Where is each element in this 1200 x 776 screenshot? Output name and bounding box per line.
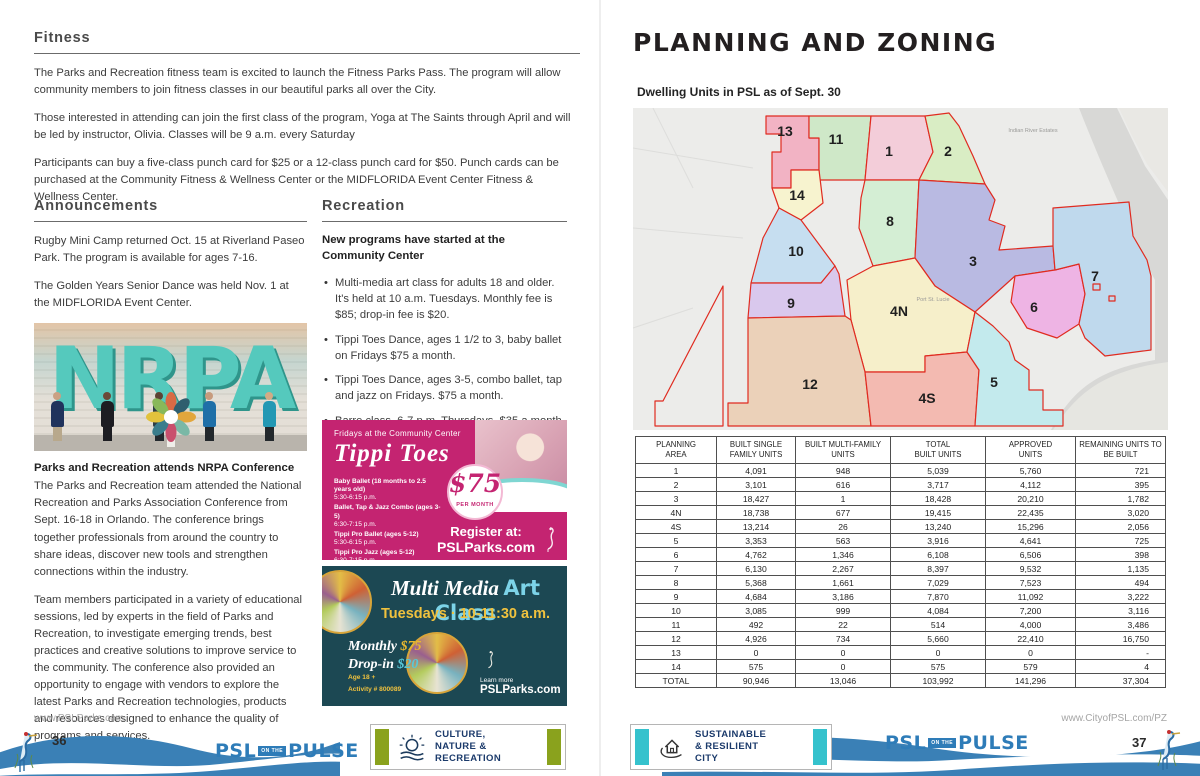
table-cell: 3,085 (717, 604, 796, 618)
table-cell: 13,240 (891, 520, 986, 534)
page-title: PLANNING AND ZONING (633, 28, 997, 57)
art-photo-circle (322, 570, 372, 634)
table-cell: 7,029 (891, 576, 986, 590)
table-cell: 492 (717, 618, 796, 632)
table-cell: 18,428 (891, 492, 986, 506)
table-cell: 22,410 (986, 632, 1076, 646)
dropin-label: Drop-in (348, 657, 394, 672)
table-cell: 0 (986, 646, 1076, 660)
table-cell: 4 (1076, 660, 1166, 674)
table-cell: 579 (986, 660, 1076, 674)
table-row: 85,3681,6617,0297,523494 (636, 576, 1166, 590)
fitness-section: Fitness The Parks and Recreation fitness… (34, 30, 580, 217)
table-cell: 677 (796, 506, 891, 520)
table-cell: 103,992 (891, 674, 986, 688)
col-planning-area: PLANNING AREA (636, 437, 717, 464)
map-area-label: 4S (918, 390, 935, 406)
multi-media-art-class-ad: Multi Media Art Class Tuesdays · 10-11:3… (322, 566, 567, 706)
table-cell: 1,135 (1076, 562, 1166, 576)
table-cell: 3,353 (717, 534, 796, 548)
badge-label: CULTURE, NATURE & RECREATION (435, 729, 541, 765)
mm-meta: Age 18 + Activity # 800089 (348, 672, 401, 696)
table-cell: 3,101 (717, 478, 796, 492)
table-cell: 22 (796, 618, 891, 632)
table-cell: 90,946 (717, 674, 796, 688)
map-area-label: 9 (787, 295, 795, 311)
table-cell: 9,532 (986, 562, 1076, 576)
map-area-label: 6 (1030, 299, 1038, 315)
table-cell: 4,926 (717, 632, 796, 646)
table-cell: 19,415 (891, 506, 986, 520)
city-logo-icon (539, 526, 561, 552)
table-row: 124,9267345,66022,41016,750 (636, 632, 1166, 646)
map-area-label: 10 (788, 243, 804, 259)
table-cell: 11,092 (986, 590, 1076, 604)
sustainable-resilient-city-badge: SUSTAINABLE & RESILIENT CITY (630, 724, 832, 770)
psl-on-the-pulse-logo: PSL ON THE PULSE (885, 732, 1029, 754)
table-cell: 0 (796, 660, 891, 674)
price-unit: PER MONTH (449, 502, 501, 508)
table-row: 14,0919485,0395,760721 (636, 464, 1166, 478)
recreation-intro: New programs have started at the Communi… (322, 233, 567, 265)
table-cell: 575 (717, 660, 796, 674)
table-cell: 12 (636, 632, 717, 646)
table-row: 130000- (636, 646, 1166, 660)
class-name: Tippi Pro Ballet (ages 5-12) (334, 531, 444, 539)
table-cell: 10 (636, 604, 717, 618)
table-cell: 2,267 (796, 562, 891, 576)
table-cell: 575 (891, 660, 986, 674)
table-cell: 3,717 (891, 478, 986, 492)
table-cell: TOTAL (636, 674, 717, 688)
table-cell: 20,210 (986, 492, 1076, 506)
table-header-row: PLANNING AREA BUILT SINGLE FAMILY UNITS … (636, 437, 1166, 464)
house-in-hand-icon (655, 730, 689, 764)
learn-more-label: Learn more (480, 677, 560, 684)
table-cell: 4,641 (986, 534, 1076, 548)
map-subtitle: Dwelling Units in PSL as of Sept. 30 (637, 85, 841, 99)
table-cell: 26 (796, 520, 891, 534)
table-cell: 4,000 (986, 618, 1076, 632)
activity-number: Activity # 800089 (348, 684, 401, 696)
person-silhouette (262, 392, 276, 441)
table-cell: 1,346 (796, 548, 891, 562)
col-approved: APPROVED UNITS (986, 437, 1076, 464)
tippi-schedule: Baby Ballet (18 months to 2.5 years old)… (334, 478, 444, 560)
table-cell: 8 (636, 576, 717, 590)
table-cell: 11 (636, 618, 717, 632)
announcements-heading: Announcements (34, 198, 307, 222)
table-cell: 3,116 (1076, 604, 1166, 618)
table-row: TOTAL90,94613,046103,992141,29637,304 (636, 674, 1166, 688)
tippi-ad-header: Fridays at the Community Center (334, 429, 461, 438)
heron-icon (7, 728, 41, 774)
table-cell: 2,056 (1076, 520, 1166, 534)
class-time: 6:30-7:15 p.m. (334, 521, 444, 528)
mm-fees: Monthly $75 Drop-in $20 (348, 638, 422, 673)
city-logo-icon (480, 650, 500, 670)
table-cell: 4,112 (986, 478, 1076, 492)
badge-bar (547, 729, 561, 765)
class-name: Baby Ballet (18 months to 2.5 years old) (334, 478, 444, 494)
recreation-section: Recreation New programs have started at … (322, 198, 567, 437)
fitness-paragraph: Those interested in attending can join t… (34, 110, 580, 144)
map-area-label: 8 (886, 213, 894, 229)
table-cell: - (1076, 646, 1166, 660)
table-cell: 5 (636, 534, 717, 548)
culture-nature-recreation-badge: CULTURE, NATURE & RECREATION (370, 724, 566, 770)
person-silhouette (50, 392, 64, 441)
table-cell: 141,296 (986, 674, 1076, 688)
table-row: 53,3535633,9164,641725 (636, 534, 1166, 548)
table-cell: 13,214 (717, 520, 796, 534)
magazine-spread: Fitness The Parks and Recreation fitness… (0, 0, 1200, 776)
table-cell: 6,108 (891, 548, 986, 562)
table-cell: 3 (636, 492, 717, 506)
table-cell: 7,200 (986, 604, 1076, 618)
table-cell: 5,660 (891, 632, 986, 646)
table-cell: 398 (1076, 548, 1166, 562)
table-cell: 9 (636, 590, 717, 604)
table-cell: 16,750 (1076, 632, 1166, 646)
class-time: 5:30-6:15 p.m. (334, 539, 444, 546)
table-row: 76,1302,2678,3979,5321,135 (636, 562, 1166, 576)
person-silhouette (202, 392, 216, 441)
map-area-label: 13 (777, 123, 793, 139)
map-place-label: Indian River Estates (1008, 128, 1057, 134)
price-amount: $75 (449, 466, 501, 502)
table-cell: 0 (891, 646, 986, 660)
table-cell: 514 (891, 618, 986, 632)
dropin-price: $20 (397, 657, 418, 672)
map-area-label: 11 (829, 131, 844, 147)
table-cell: 3,916 (891, 534, 986, 548)
table-cell: 3,222 (1076, 590, 1166, 604)
table-row: 23,1016163,7174,112395 (636, 478, 1166, 492)
nrpa-caption-title: Parks and Recreation attends NRPA Confer… (34, 461, 307, 476)
table-cell: 13,046 (796, 674, 891, 688)
table-cell: 8,397 (891, 562, 986, 576)
nrpa-conference-photo: NRPA (34, 323, 307, 451)
price-badge: $75 PER MONTH (447, 464, 503, 520)
table-cell: 948 (796, 464, 891, 478)
table-cell: 4N (636, 506, 717, 520)
tippi-toes-ad: Fridays at the Community Center Tippi To… (322, 420, 567, 560)
table-cell: 4S (636, 520, 717, 534)
map-area-label: 4N (890, 303, 908, 319)
mm-title-script: Multi Media (391, 576, 499, 600)
announcements-section: Announcements Rugby Mini Camp returned O… (34, 198, 307, 756)
page-number: 36 (52, 733, 66, 748)
dwelling-units-table: PLANNING AREA BUILT SINGLE FAMILY UNITS … (635, 436, 1165, 688)
map-area-label: 5 (990, 374, 998, 390)
fitness-paragraph: The Parks and Recreation fitness team is… (34, 65, 580, 99)
table-cell: 37,304 (1076, 674, 1166, 688)
table-cell: 721 (1076, 464, 1166, 478)
table-row: 94,6843,1867,87011,0923,222 (636, 590, 1166, 604)
announcements-paragraph: Rugby Mini Camp returned Oct. 15 at Rive… (34, 233, 307, 267)
badge-label: SUSTAINABLE & RESILIENT CITY (695, 729, 807, 765)
table-cell: 1,782 (1076, 492, 1166, 506)
monthly-price: $75 (401, 639, 422, 654)
table-row: 64,7621,3466,1086,506398 (636, 548, 1166, 562)
nrpa-paragraph: The Parks and Recreation team attended t… (34, 478, 307, 580)
table-cell: 616 (796, 478, 891, 492)
table-row: 4N18,73867719,41522,4353,020 (636, 506, 1166, 520)
recreation-bullet: Tippi Toes Dance, ages 3-5, combo ballet… (322, 372, 567, 404)
table-cell: 494 (1076, 576, 1166, 590)
table-cell: 4,091 (717, 464, 796, 478)
tippi-toes-logo: Tippi Toes (334, 440, 450, 468)
table-cell: 14 (636, 660, 717, 674)
table-cell: 563 (796, 534, 891, 548)
table-cell: 2 (636, 478, 717, 492)
recreation-bullet-list: Multi-media art class for adults 18 and … (322, 275, 567, 429)
nrpa-flower-logo (145, 391, 197, 447)
table-cell: 1 (796, 492, 891, 506)
table-cell: 4,762 (717, 548, 796, 562)
table-cell: 0 (796, 646, 891, 660)
recreation-bullet: Multi-media art class for adults 18 and … (322, 275, 567, 324)
monthly-label: Monthly (348, 639, 397, 654)
table-cell: 6,130 (717, 562, 796, 576)
table-row: 11492225144,0003,486 (636, 618, 1166, 632)
heron-icon (1152, 726, 1186, 772)
table-cell: 3,020 (1076, 506, 1166, 520)
class-time: 6:30-7:15 p.m. (334, 557, 444, 560)
planning-map-svg: Port St. LucieIndian River Estates 13111… (633, 108, 1168, 430)
table-row: 318,427118,42820,2101,782 (636, 492, 1166, 506)
map-area-label: 2 (944, 143, 952, 159)
table-cell: 5,760 (986, 464, 1076, 478)
table-cell: 18,738 (717, 506, 796, 520)
table-cell: 734 (796, 632, 891, 646)
table-cell: 5,039 (891, 464, 986, 478)
table-cell: 3,186 (796, 590, 891, 604)
badge-bar (635, 729, 649, 765)
page-number: 37 (1132, 735, 1146, 750)
table-cell: 7,523 (986, 576, 1076, 590)
table-cell: 395 (1076, 478, 1166, 492)
class-name: Ballet, Tap & Jazz Combo (ages 3-5) (334, 504, 444, 520)
map-area-label: 1 (885, 143, 893, 159)
table-cell: 22,435 (986, 506, 1076, 520)
map-area-label: 3 (969, 253, 977, 269)
fitness-heading: Fitness (34, 30, 580, 54)
table-cell: 4,084 (891, 604, 986, 618)
recreation-bullet: Tippi Toes Dance, ages 1 1/2 to 3, baby … (322, 332, 567, 364)
age-requirement: Age 18 + (348, 672, 401, 684)
map-area-label: 12 (802, 376, 818, 392)
register-callout: Register at: PSLParks.com (430, 524, 542, 555)
psl-on-the-pulse-logo: PSL ON THE PULSE (215, 740, 359, 762)
table-cell: 1 (636, 464, 717, 478)
mm-schedule: Tuesdays · 10-11:30 a.m. (368, 606, 563, 622)
badge-bar (813, 729, 827, 765)
table-cell: 7,870 (891, 590, 986, 604)
table-cell: 3,486 (1076, 618, 1166, 632)
table-row: 1457505755794 (636, 660, 1166, 674)
class-time: 5:30-6:15 p.m. (334, 494, 444, 501)
table-cell: 13 (636, 646, 717, 660)
badge-bar (375, 729, 389, 765)
sun-over-water-icon (395, 730, 429, 764)
table-cell: 725 (1076, 534, 1166, 548)
psl-planning-areas-map: Port St. LucieIndian River Estates 13111… (633, 108, 1168, 430)
left-footer-url: www.PSLParks.com (34, 713, 124, 724)
class-name: Tippi Pro Jazz (ages 5-12) (334, 549, 444, 557)
map-place-label: Port St. Lucie (916, 297, 949, 303)
table-cell: 7 (636, 562, 717, 576)
mm-learn-more: Learn more PSLParks.com (480, 650, 560, 696)
table-cell: 5,368 (717, 576, 796, 590)
col-total-built: TOTAL BUILT UNITS (891, 437, 986, 464)
announcements-paragraph: The Golden Years Senior Dance was held N… (34, 278, 307, 312)
table-cell: 1,661 (796, 576, 891, 590)
table-cell: 18,427 (717, 492, 796, 506)
table-cell: 0 (717, 646, 796, 660)
recreation-heading: Recreation (322, 198, 567, 222)
table-row: 4S13,2142613,24015,2962,056 (636, 520, 1166, 534)
table-cell: 4,684 (717, 590, 796, 604)
col-built-single: BUILT SINGLE FAMILY UNITS (717, 437, 796, 464)
col-remaining: REMAINING UNITS TO BE BUILT (1076, 437, 1166, 464)
table-cell: 6 (636, 548, 717, 562)
map-area-label: 14 (789, 187, 805, 203)
mm-url: PSLParks.com (480, 684, 560, 696)
page-gutter (599, 0, 601, 776)
person-silhouette (100, 392, 114, 441)
table-cell: 999 (796, 604, 891, 618)
table-cell: 15,296 (986, 520, 1076, 534)
col-built-multi: BUILT MULTI-FAMILY UNITS (796, 437, 891, 464)
table-cell: 6,506 (986, 548, 1076, 562)
table-row: 103,0859994,0847,2003,116 (636, 604, 1166, 618)
map-area-label: 7 (1091, 268, 1099, 284)
